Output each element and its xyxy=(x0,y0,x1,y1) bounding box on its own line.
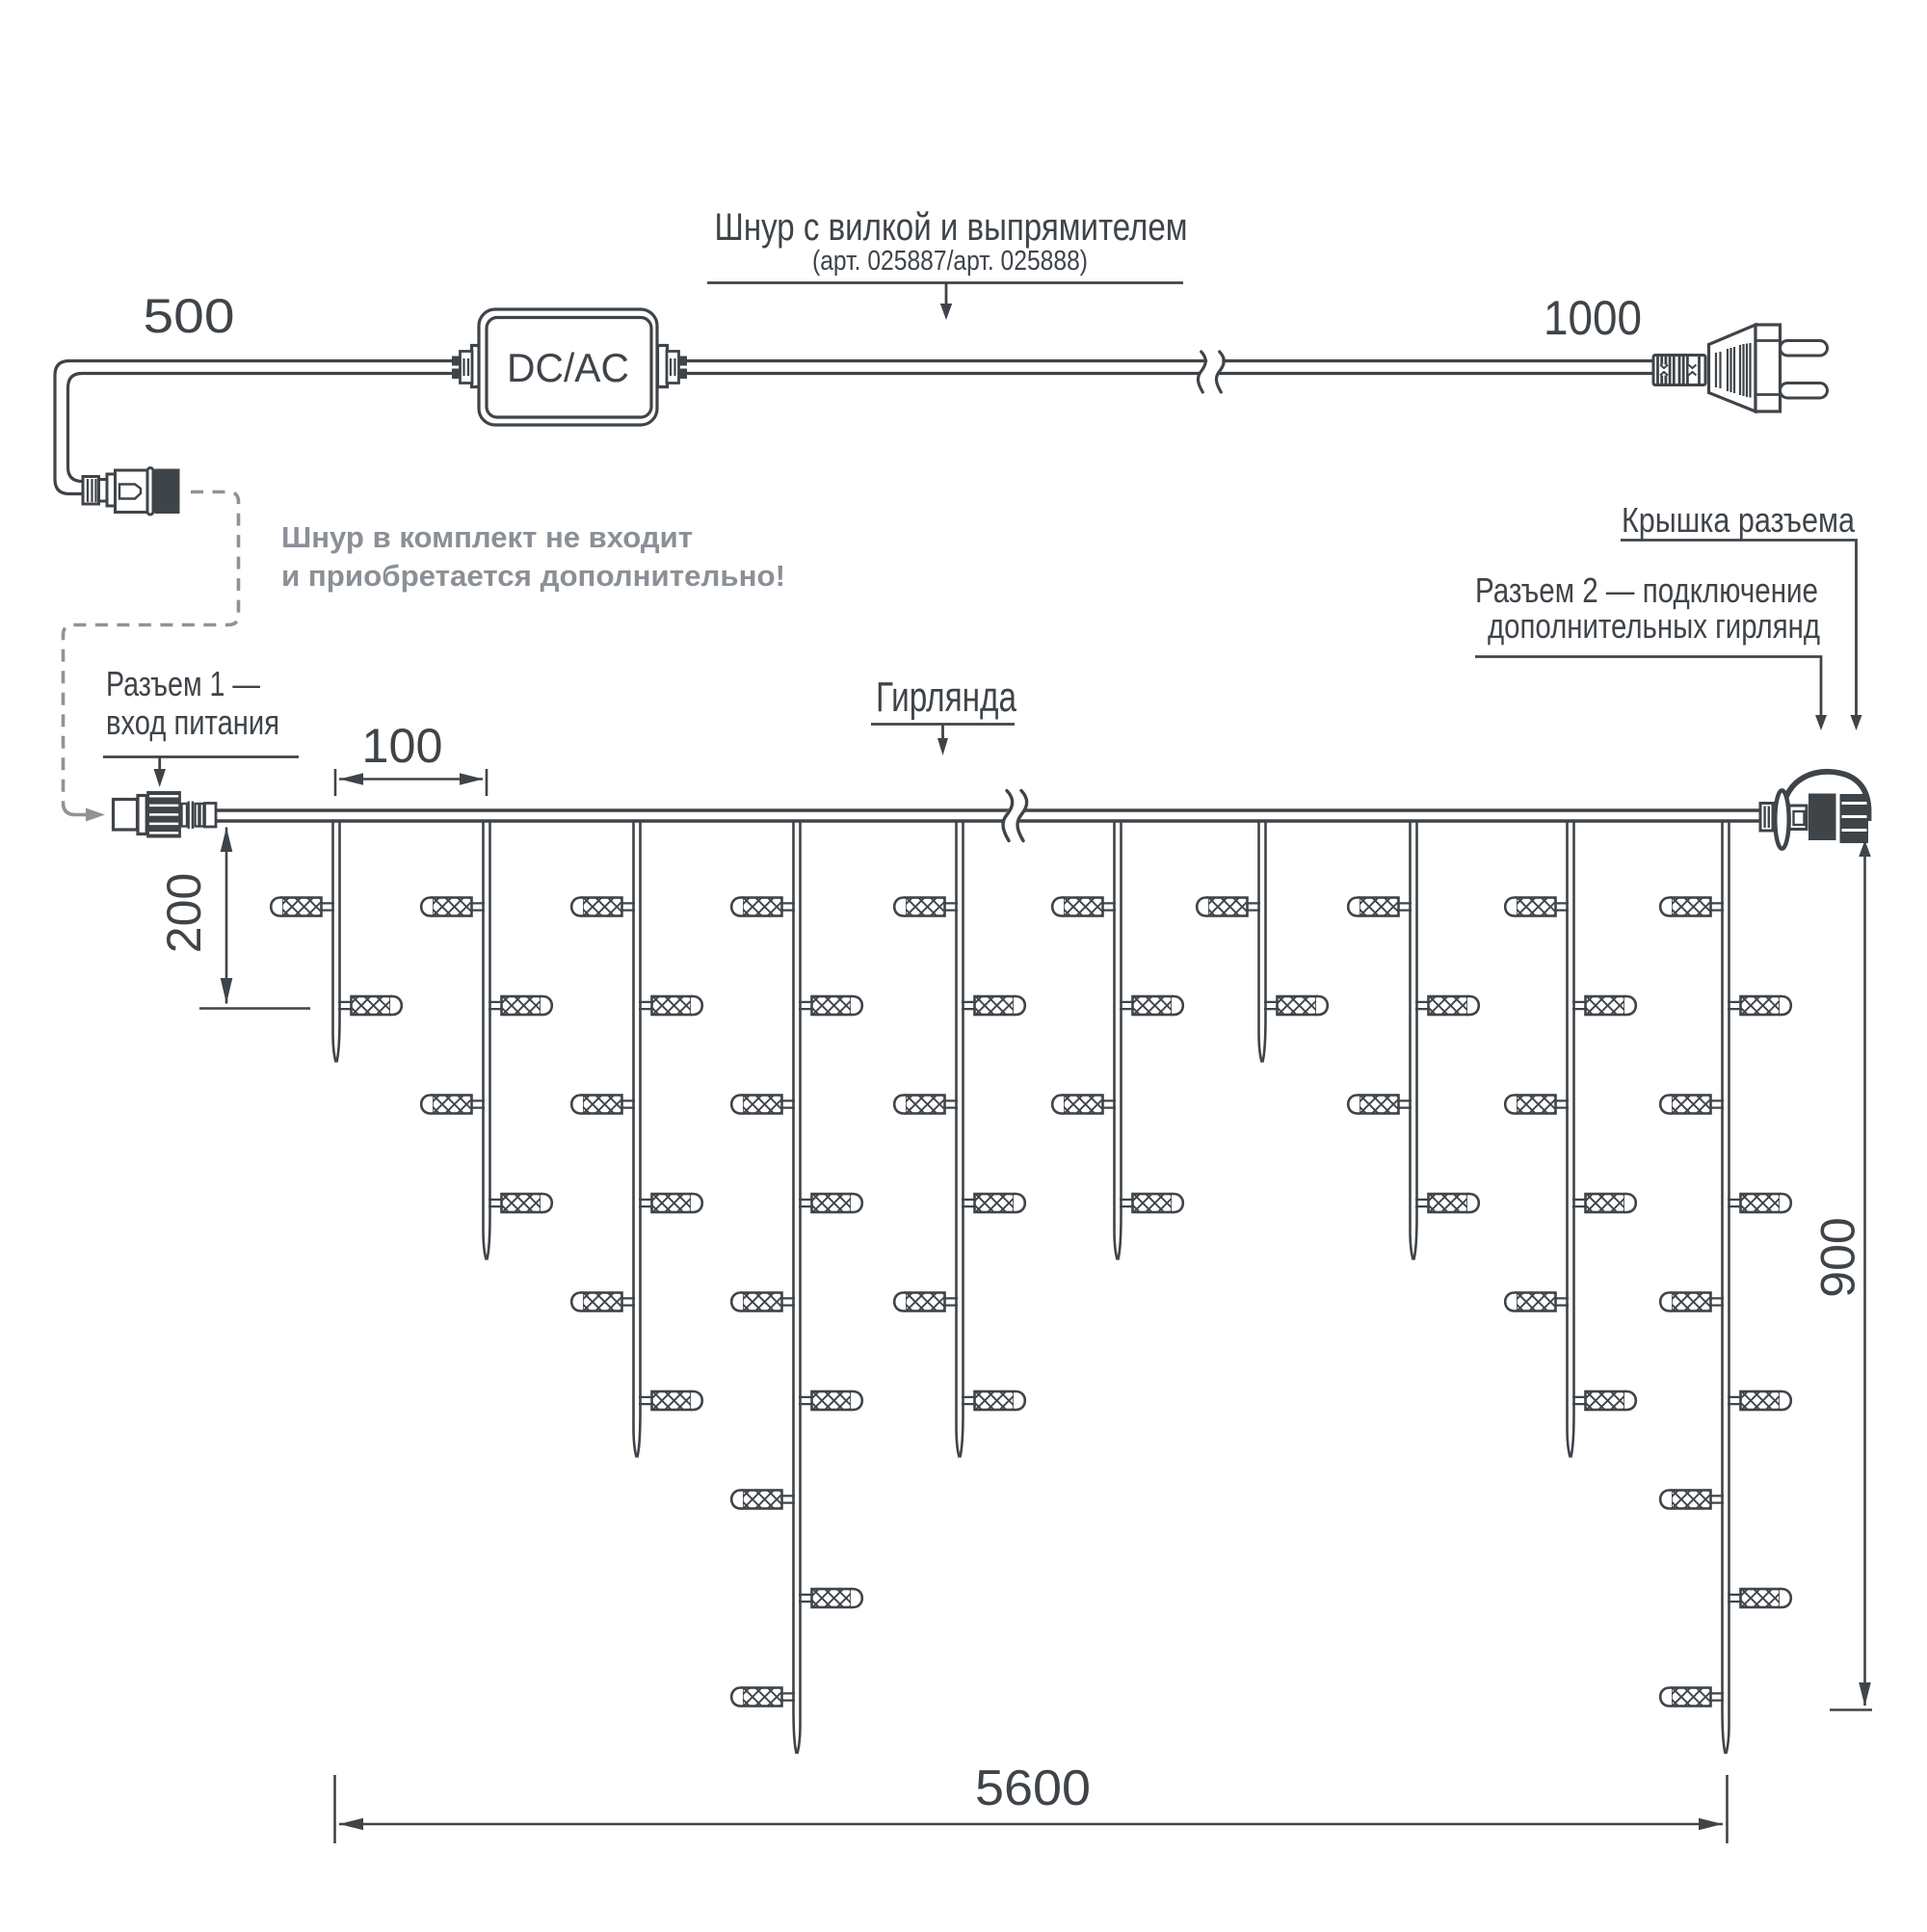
svg-text:1000: 1000 xyxy=(1544,291,1642,345)
svg-text:(арт. 025887/арт. 025888): (арт. 025887/арт. 025888) xyxy=(812,246,1088,277)
svg-text:200: 200 xyxy=(157,873,211,953)
svg-text:Разъем 2 — подключение: Разъем 2 — подключение xyxy=(1475,570,1818,610)
svg-text:Разъем 1 —: Разъем 1 — xyxy=(106,664,260,703)
svg-text:Шнур с вилкой и выпрямителем: Шнур с вилкой и выпрямителем xyxy=(715,206,1188,249)
svg-text:Гирлянда: Гирлянда xyxy=(876,674,1016,721)
svg-text:900: 900 xyxy=(1811,1217,1865,1297)
svg-text:DC/AC: DC/AC xyxy=(507,345,629,390)
svg-text:Шнур в комплект не входит: Шнур в комплект не входит xyxy=(281,520,693,554)
svg-text:и приобретается дополнительно!: и приобретается дополнительно! xyxy=(281,559,785,593)
svg-text:5600: 5600 xyxy=(975,1760,1091,1816)
svg-text:500: 500 xyxy=(144,289,235,343)
svg-text:дополнительных гирлянд: дополнительных гирлянд xyxy=(1488,606,1820,646)
svg-text:вход питания: вход питания xyxy=(106,702,279,742)
svg-text:Крышка разъема: Крышка разъема xyxy=(1622,500,1856,540)
svg-text:100: 100 xyxy=(362,719,443,773)
